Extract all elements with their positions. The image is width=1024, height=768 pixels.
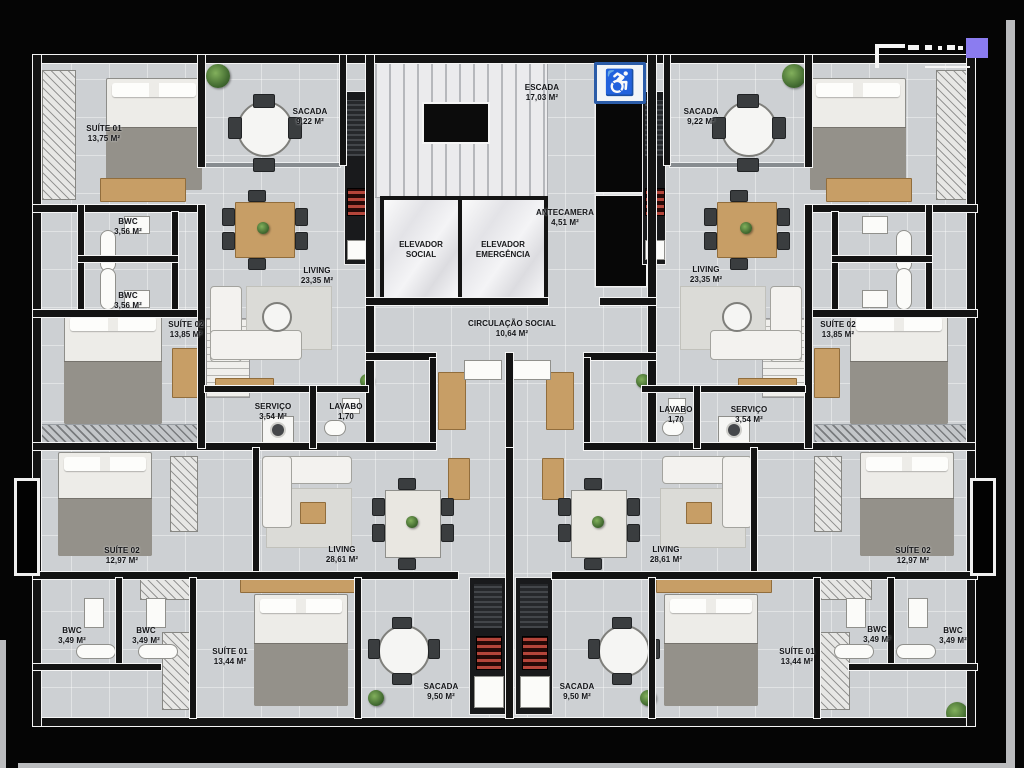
bathroom-sink — [908, 598, 928, 628]
room-name: SUÍTE 01 — [779, 647, 814, 657]
room-name: ANTECAMERA — [536, 208, 594, 218]
wall — [33, 443, 436, 450]
chair — [588, 639, 600, 659]
wall — [584, 358, 590, 448]
chair — [772, 117, 786, 139]
utility-shaft — [596, 196, 646, 286]
plant — [740, 222, 752, 234]
wall — [198, 55, 205, 167]
elevator-social: ELEVADOR SOCIAL — [380, 196, 462, 304]
plant — [257, 222, 269, 234]
room-area: 13,85 M² — [820, 330, 855, 340]
wall — [172, 212, 178, 316]
logo-fragment — [908, 45, 919, 50]
room-label-bwc1-bottom-left: BWC3,49 M² — [58, 626, 86, 646]
room-area: 28,61 M² — [650, 555, 682, 565]
chair — [392, 617, 412, 629]
kitchen-sink — [347, 240, 367, 260]
bed — [58, 452, 152, 556]
room-label-servico-left: SERVIÇO3,54 M² — [255, 402, 292, 422]
plant — [406, 516, 418, 528]
desk — [814, 348, 840, 398]
room-label-lavabo-left: LAVABO1,70 — [329, 402, 362, 422]
chair — [737, 94, 759, 108]
sofa — [722, 456, 752, 528]
room-label-living-bottom-left: LIVING28,61 M² — [326, 545, 358, 565]
room-area: 10,64 M² — [468, 329, 556, 339]
utility-shaft — [596, 98, 646, 192]
ledge-hatch — [814, 424, 974, 443]
toilet — [896, 230, 912, 272]
side-table — [542, 458, 564, 500]
chair — [441, 524, 454, 542]
room-label-bwc1-top-left: BWC3,56 M² — [114, 217, 142, 237]
chair — [558, 524, 571, 542]
logo-fragment — [875, 44, 879, 68]
wall — [190, 578, 196, 718]
room-name: BWC — [863, 625, 891, 635]
coffee-table — [686, 502, 712, 524]
room-name: SERVIÇO — [255, 402, 292, 412]
accessibility-icon: ♿ — [594, 62, 646, 104]
plant — [592, 516, 604, 528]
wall — [205, 386, 368, 392]
hall-counter — [464, 360, 502, 380]
toilet — [896, 268, 912, 310]
coffee-table — [300, 502, 326, 524]
wall — [552, 572, 977, 579]
wall — [805, 205, 812, 448]
chair — [228, 117, 242, 139]
wardrobe — [42, 70, 76, 200]
chair — [248, 258, 266, 270]
chair — [558, 498, 571, 516]
room-label-sacada-bottom-left: SACADA9,50 M² — [424, 682, 459, 702]
bathtub — [76, 644, 116, 659]
logo-fragment — [925, 66, 970, 68]
room-name: SUÍTE 02 — [168, 320, 203, 330]
room-area: 9,50 M² — [560, 692, 595, 702]
room-label-living-top-left: LIVING23,35 M² — [301, 266, 333, 286]
plant — [782, 64, 806, 88]
logo-fragment — [925, 45, 932, 50]
wall — [805, 55, 812, 167]
wall — [430, 358, 436, 448]
room-label-bwc2-bottom-left: BWC3,49 M² — [132, 626, 160, 646]
chair — [253, 158, 275, 172]
wall — [642, 386, 805, 392]
chair — [398, 478, 416, 490]
room-area: 23,35 M² — [301, 276, 333, 286]
bathroom-sink — [862, 290, 888, 308]
chair — [428, 639, 440, 659]
bed — [810, 78, 906, 190]
room-label-escada: ESCADA17,03 M² — [525, 83, 559, 103]
wall — [506, 353, 513, 448]
wall — [33, 572, 458, 579]
stove-burner — [522, 636, 548, 670]
room-name: LAVABO — [659, 405, 692, 415]
kitchen-sink — [520, 676, 550, 708]
wall — [310, 386, 316, 448]
room-label-suite01-bottom-right: SUÍTE 0113,44 M² — [779, 647, 814, 667]
chair — [441, 498, 454, 516]
kitchen-appliance — [474, 584, 502, 628]
bathtub — [896, 644, 936, 659]
hall-desk — [438, 372, 466, 430]
bathroom-sink — [84, 598, 104, 628]
chair — [248, 190, 266, 202]
logo-fragment — [875, 44, 905, 48]
chair — [777, 232, 790, 250]
wall — [33, 55, 975, 63]
room-name: SACADA — [424, 682, 459, 692]
wall — [805, 310, 977, 317]
chair — [295, 208, 308, 226]
round-table — [237, 101, 293, 157]
elevator-emergency-label: ELEVADOR EMERGÊNCIA — [474, 240, 532, 261]
coffee-table — [722, 302, 752, 332]
room-label-living-top-right: LIVING23,35 M² — [690, 265, 722, 285]
side-ledge — [970, 478, 996, 576]
chair — [777, 208, 790, 226]
room-label-bwc2-bottom-right: BWC3,49 M² — [939, 626, 967, 646]
side-ledge — [14, 478, 40, 576]
chair — [612, 617, 632, 629]
round-table — [378, 625, 430, 677]
logo-fragment — [947, 45, 955, 50]
stove-burner — [347, 188, 367, 216]
chair — [222, 208, 235, 226]
room-label-suite01-bottom-left: SUÍTE 0113,44 M² — [212, 647, 247, 667]
frame-edge-right — [1006, 20, 1015, 768]
room-label-bwc2-top-left: BWC3,56 M² — [114, 291, 142, 311]
room-area: 3,49 M² — [863, 635, 891, 645]
chair — [612, 673, 632, 685]
room-name: LIVING — [326, 545, 358, 555]
room-area: 13,75 M² — [86, 134, 121, 144]
wall — [506, 448, 513, 718]
chair — [730, 258, 748, 270]
room-area: 3,49 M² — [939, 636, 967, 646]
wall — [253, 448, 259, 575]
toilet — [324, 420, 346, 436]
room-label-sacada-bottom-right: SACADA9,50 M² — [560, 682, 595, 702]
room-area: 9,22 M² — [684, 117, 719, 127]
hall-counter — [513, 360, 551, 380]
kitchen-appliance — [520, 584, 548, 628]
wall — [366, 353, 436, 360]
wall — [116, 578, 122, 666]
chair — [584, 558, 602, 570]
bed — [664, 594, 758, 706]
plant — [206, 64, 230, 88]
room-label-suite02-left: SUÍTE 0213,85 M² — [168, 320, 203, 340]
room-label-living-bottom-right: LIVING28,61 M² — [650, 545, 682, 565]
room-name: BWC — [939, 626, 967, 636]
room-area: 4,51 M² — [536, 218, 594, 228]
wall — [832, 212, 838, 316]
bed — [850, 312, 948, 424]
wall — [355, 578, 361, 718]
wall — [584, 443, 975, 450]
room-label-sacada-top-left: SACADA9,22 M² — [293, 107, 328, 127]
room-label-suite01-top-left: SUÍTE 0113,75 M² — [86, 124, 121, 144]
room-area: 1,70 — [329, 412, 362, 422]
room-name: SUÍTE 02 — [104, 546, 139, 556]
bathtub — [138, 644, 178, 659]
room-name: SUÍTE 02 — [820, 320, 855, 330]
wall — [751, 448, 757, 575]
bathroom-sink — [846, 598, 866, 628]
chair — [295, 232, 308, 250]
wall — [664, 55, 670, 165]
room-name: SACADA — [560, 682, 595, 692]
plant — [368, 690, 384, 706]
room-name: CIRCULAÇÃO SOCIAL — [468, 319, 556, 329]
round-table — [721, 101, 777, 157]
room-label-servico-right: SERVIÇO3,54 M² — [731, 405, 768, 425]
wall — [33, 664, 161, 670]
desk — [826, 178, 912, 202]
chair — [584, 478, 602, 490]
wall — [967, 55, 975, 726]
room-area: 3,49 M² — [58, 636, 86, 646]
wardrobe — [140, 578, 192, 600]
chair — [253, 94, 275, 108]
wheelchair-glyph: ♿ — [604, 71, 635, 96]
elevator-social-label: ELEVADOR SOCIAL — [392, 240, 450, 261]
room-area: 13,85 M² — [168, 330, 203, 340]
desk — [100, 178, 186, 202]
desk — [172, 348, 198, 398]
room-area: 13,44 M² — [779, 657, 814, 667]
chair — [730, 190, 748, 202]
room-name: BWC — [58, 626, 86, 636]
room-label-antecamera: ANTECAMERA4,51 M² — [536, 208, 594, 228]
room-label-bwc1-bottom-right: BWC3,49 M² — [863, 625, 891, 645]
frame-edge-left — [0, 640, 6, 768]
round-table — [598, 625, 650, 677]
wall — [78, 256, 178, 262]
wall — [814, 578, 820, 718]
room-area: 17,03 M² — [525, 93, 559, 103]
sofa — [262, 456, 292, 528]
frame-edge-bottom — [18, 763, 1015, 768]
wall — [33, 310, 205, 317]
room-area: 9,50 M² — [424, 692, 459, 702]
wall — [694, 386, 700, 448]
logo-square — [966, 38, 988, 58]
room-label-lavabo-right: LAVABO1,70 — [659, 405, 692, 425]
room-name: ESCADA — [525, 83, 559, 93]
wall — [805, 205, 977, 212]
room-label-suite02-right: SUÍTE 0213,85 M² — [820, 320, 855, 340]
chair — [704, 208, 717, 226]
wardrobe — [170, 456, 198, 532]
elevator-emergency: ELEVADOR EMERGÊNCIA — [458, 196, 548, 304]
kitchen-appliance — [347, 100, 365, 156]
kitchen-sink — [474, 676, 504, 708]
wardrobe — [820, 578, 872, 600]
room-name: SACADA — [293, 107, 328, 117]
room-name: LIVING — [650, 545, 682, 555]
room-name: LIVING — [690, 265, 722, 275]
room-name: SUÍTE 01 — [86, 124, 121, 134]
room-name: BWC — [114, 217, 142, 227]
wall — [849, 664, 977, 670]
chair — [398, 558, 416, 570]
bed — [860, 452, 954, 556]
room-name: LAVABO — [329, 402, 362, 412]
logo-fragment — [958, 46, 963, 50]
stair-landing — [424, 104, 488, 142]
room-name: BWC — [132, 626, 160, 636]
chair — [392, 673, 412, 685]
wall — [33, 55, 41, 726]
room-name: LIVING — [301, 266, 333, 276]
room-area: 12,97 M² — [104, 556, 139, 566]
room-area: 3,56 M² — [114, 301, 142, 311]
chair — [372, 524, 385, 542]
room-label-circulacao-social: CIRCULAÇÃO SOCIAL10,64 M² — [468, 319, 556, 339]
room-area: 13,44 M² — [212, 657, 247, 667]
bathtub — [834, 644, 874, 659]
room-area: 28,61 M² — [326, 555, 358, 565]
chair — [222, 232, 235, 250]
coffee-table — [262, 302, 292, 332]
bathroom-sink — [146, 598, 166, 628]
floor-plan-image: ELEVADOR SOCIAL ELEVADOR EMERGÊNCIA — [0, 0, 1024, 768]
bed — [64, 312, 162, 424]
room-name: SUÍTE 01 — [212, 647, 247, 657]
room-label-suite02-bottom-right: SUÍTE 0212,97 M² — [895, 546, 930, 566]
chair — [704, 232, 717, 250]
chair — [627, 524, 640, 542]
wall — [600, 298, 656, 305]
wall — [33, 718, 975, 726]
room-name: SERVIÇO — [731, 405, 768, 415]
hall-desk — [546, 372, 574, 430]
wall — [649, 578, 655, 718]
wall — [340, 55, 346, 165]
bed — [254, 594, 348, 706]
logo-fragment — [938, 46, 942, 50]
sofa — [210, 330, 302, 360]
room-name: BWC — [114, 291, 142, 301]
room-area: 12,97 M² — [895, 556, 930, 566]
wall — [584, 353, 656, 360]
wall — [366, 298, 548, 305]
room-area: 3,56 M² — [114, 227, 142, 237]
wall — [888, 578, 894, 666]
room-area: 9,22 M² — [293, 117, 328, 127]
room-label-sacada-top-right: SACADA9,22 M² — [684, 107, 719, 127]
bathroom-sink — [862, 216, 888, 234]
room-area: 3,54 M² — [731, 415, 768, 425]
chair — [372, 498, 385, 516]
chair — [737, 158, 759, 172]
stove-burner — [476, 636, 502, 670]
chair — [368, 639, 380, 659]
room-area: 3,49 M² — [132, 636, 160, 646]
ledge-hatch — [38, 424, 198, 443]
room-label-suite02-bottom-left: SUÍTE 0212,97 M² — [104, 546, 139, 566]
room-name: SUÍTE 02 — [895, 546, 930, 556]
wall — [832, 256, 932, 262]
wardrobe — [814, 456, 842, 532]
room-area: 3,54 M² — [255, 412, 292, 422]
room-area: 1,70 — [659, 415, 692, 425]
sofa — [710, 330, 802, 360]
side-table — [448, 458, 470, 500]
chair — [627, 498, 640, 516]
wardrobe — [936, 70, 970, 200]
room-name: SACADA — [684, 107, 719, 117]
wall — [33, 205, 205, 212]
room-area: 23,35 M² — [690, 275, 722, 285]
